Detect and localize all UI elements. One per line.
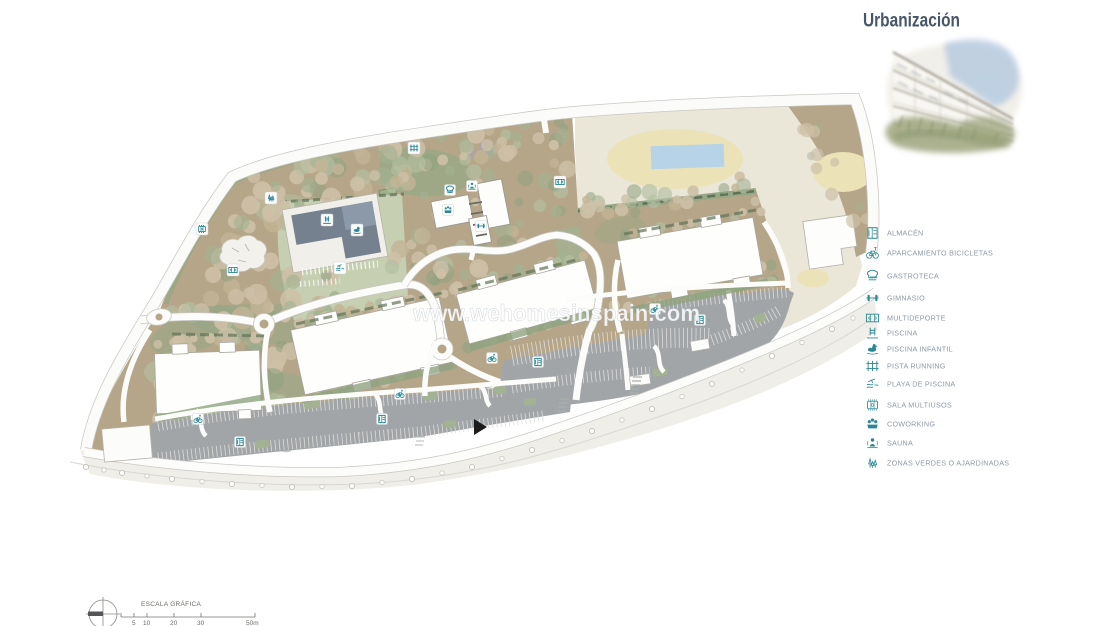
svg-text:50m: 50m — [246, 620, 259, 626]
svg-text:PISTA RUNNING: PISTA RUNNING — [887, 362, 946, 371]
svg-text:SAUNA: SAUNA — [887, 439, 913, 448]
svg-text:Urbanización: Urbanización — [863, 11, 960, 32]
svg-text:ALMACÉN: ALMACÉN — [887, 229, 924, 238]
svg-text:ESCALA GRÁFICA: ESCALA GRÁFICA — [141, 599, 202, 608]
svg-text:www.wehomesinspain.com: www.wehomesinspain.com — [412, 300, 700, 326]
svg-text:20: 20 — [170, 620, 178, 626]
svg-text:COWORKING: COWORKING — [887, 420, 935, 429]
svg-text:PISCINA INFANTIL: PISCINA INFANTIL — [887, 345, 953, 354]
svg-text:PLAYA DE PISCINA: PLAYA DE PISCINA — [887, 380, 955, 389]
svg-text:GASTROTECA: GASTROTECA — [887, 272, 939, 281]
svg-text:APARCAMIENTO BICICLETAS: APARCAMIENTO BICICLETAS — [887, 249, 993, 258]
svg-text:SALA MULTIUSOS: SALA MULTIUSOS — [887, 401, 952, 410]
svg-text:GIMNASIO: GIMNASIO — [887, 294, 925, 303]
svg-text:30: 30 — [197, 620, 205, 626]
svg-text:MULTIDEPORTE: MULTIDEPORTE — [887, 314, 946, 323]
svg-text:10: 10 — [143, 620, 151, 626]
svg-text:PISCINA: PISCINA — [887, 329, 918, 338]
svg-text:ZONAS VERDES O AJARDINADAS: ZONAS VERDES O AJARDINADAS — [887, 459, 1009, 468]
svg-text:5: 5 — [132, 620, 136, 626]
